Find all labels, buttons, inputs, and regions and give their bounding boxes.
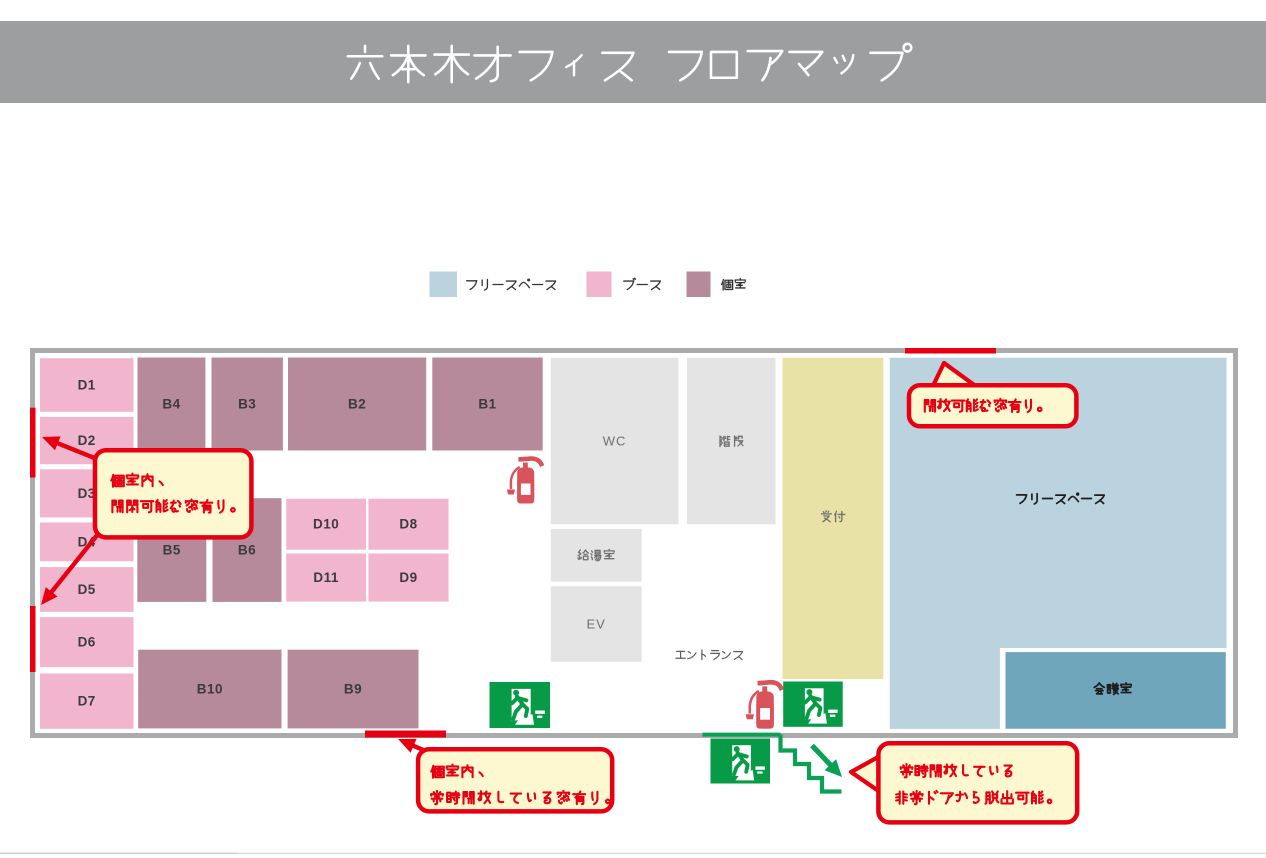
svg-text:D7: D7 [78,694,96,709]
svg-text:B9: B9 [344,682,362,697]
svg-text:D1: D1 [78,378,96,393]
svg-text:B3: B3 [238,397,256,412]
svg-text:B2: B2 [348,397,366,412]
svg-text:D6: D6 [78,635,96,650]
svg-text:EV: EV [587,617,606,632]
svg-text:D11: D11 [313,570,339,585]
svg-text:D8: D8 [399,517,417,532]
svg-text:B10: B10 [197,682,223,697]
svg-text:WC: WC [603,434,627,449]
svg-text:D5: D5 [78,582,96,597]
svg-text:B5: B5 [163,543,181,558]
svg-text:D9: D9 [399,570,417,585]
svg-text:D2: D2 [78,433,96,448]
svg-text:D10: D10 [313,517,339,532]
svg-text:B1: B1 [478,397,496,412]
svg-text:B4: B4 [162,397,180,412]
svg-text:B6: B6 [238,543,256,558]
